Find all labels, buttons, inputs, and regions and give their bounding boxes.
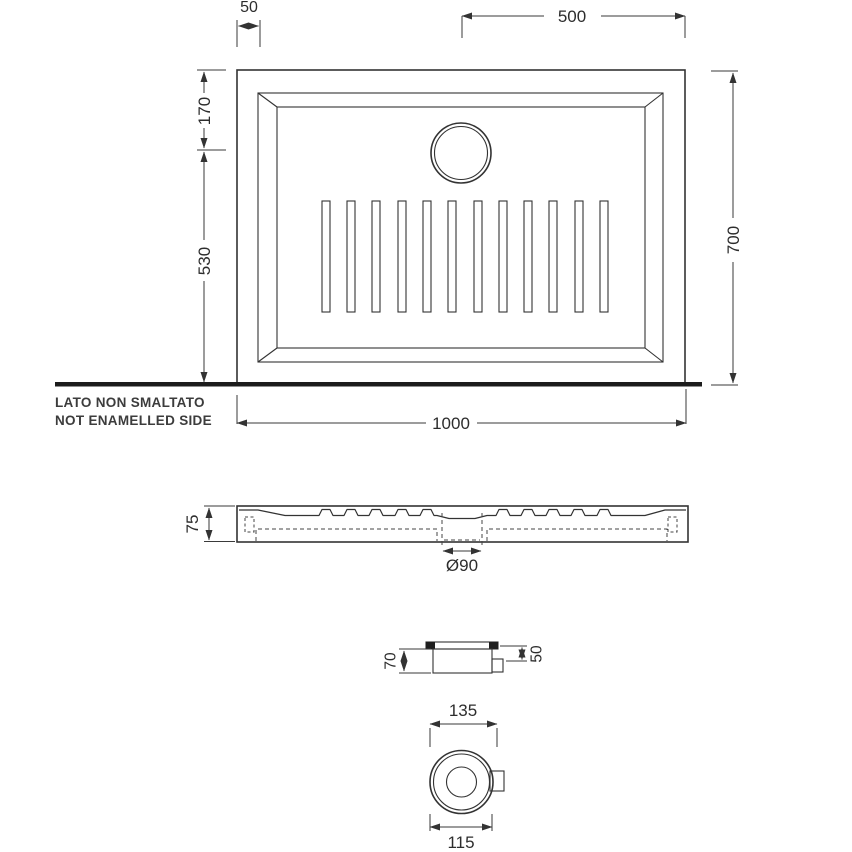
technical-drawing-page: LATO NON SMALTATO NOT ENAMELLED SIDE 50 … (0, 0, 852, 852)
top-view: LATO NON SMALTATO NOT ENAMELLED SIDE 50 … (55, 0, 743, 433)
dimension-50-rim: 50 (237, 0, 260, 47)
drain-bottom-view: 135 115 (430, 701, 504, 852)
drain-slot (347, 201, 355, 312)
shower-tray-technical-drawing: LATO NON SMALTATO NOT ENAMELLED SIDE 50 … (0, 0, 852, 852)
dimension-700: 700 (711, 71, 743, 385)
dim-label-115: 115 (447, 833, 474, 852)
dimension-135: 135 (430, 701, 497, 747)
dimension-70: 70 (383, 649, 432, 673)
tray-rim-outer (258, 93, 663, 362)
section-outline (237, 506, 688, 542)
section-view: 75 Ø90 (183, 506, 688, 575)
dim-label-1000: 1000 (432, 414, 470, 433)
drain-outlet-pipe (492, 659, 503, 672)
dimension-75: 75 (183, 506, 235, 542)
note-italian: LATO NON SMALTATO (55, 395, 205, 410)
dim-label-70: 70 (383, 652, 400, 670)
section-floor-ribs (239, 510, 686, 519)
dim-label-170: 170 (195, 97, 214, 125)
drain-flange-seal-right (489, 642, 498, 649)
drain-slot (372, 201, 380, 312)
drain-flange-plate (426, 642, 498, 649)
dim-label-135: 135 (449, 701, 477, 720)
drain-side-view: 70 50 (383, 642, 546, 673)
dim-label-75: 75 (183, 515, 202, 534)
drainage-slots (322, 201, 608, 312)
dimension-50-outlet: 50 (500, 645, 546, 663)
drain-slot (448, 201, 456, 312)
dimension-115: 115 (430, 814, 492, 852)
drain-trap-body (433, 649, 492, 673)
drain-slot (474, 201, 482, 312)
drain-hole-outer (431, 123, 491, 183)
dimension-170: 170 (195, 70, 226, 150)
dimension-drain-90: Ø90 (443, 551, 481, 575)
drain-slot (575, 201, 583, 312)
drain-slot (499, 201, 507, 312)
dimension-1000: 1000 (237, 389, 686, 433)
drain-flange-seal-left (426, 642, 435, 649)
tray-rim-inner (277, 107, 645, 348)
note-english: NOT ENAMELLED SIDE (55, 413, 212, 428)
dimension-530: 530 (195, 152, 214, 382)
drain-slot (549, 201, 557, 312)
drain-slot (524, 201, 532, 312)
dim-label-50-outlet: 50 (529, 645, 546, 663)
dim-label-50: 50 (240, 0, 258, 16)
drain-flange-outer (430, 751, 493, 814)
not-enamelled-side-line (55, 382, 702, 387)
drain-flange-inner (434, 754, 490, 810)
dim-label-700: 700 (724, 226, 743, 254)
drain-center-hole (447, 767, 477, 797)
drain-slot (600, 201, 608, 312)
dim-label-530: 530 (195, 247, 214, 275)
rim-miter-lines (258, 93, 663, 362)
dim-label-90: Ø90 (446, 556, 478, 575)
drain-slot (398, 201, 406, 312)
drain-slot (423, 201, 431, 312)
dim-label-500: 500 (558, 7, 586, 26)
dimension-500-drain: 500 (462, 7, 685, 38)
tray-outer-edge (237, 70, 685, 384)
drain-slot (322, 201, 330, 312)
drain-hole-inner (435, 127, 488, 180)
